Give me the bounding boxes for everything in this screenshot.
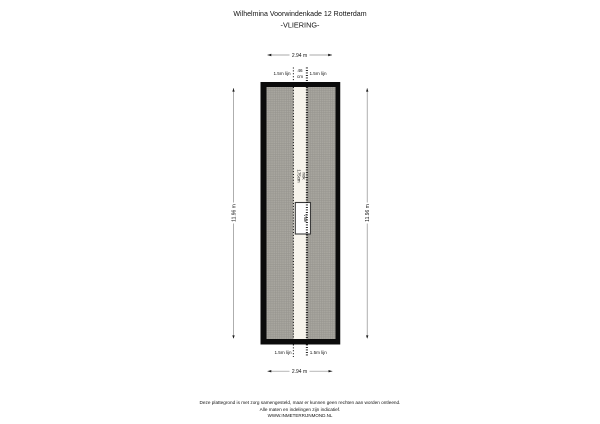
svg-text:1.5m lijn: 1.5m lijn [310, 350, 328, 355]
svg-text:Alle maten en indelingen zijn: Alle maten en indelingen zijn indicatief… [260, 407, 341, 412]
svg-text:11.96 m: 11.96 m [232, 204, 238, 222]
svg-text:1.5m lijn: 1.5m lijn [273, 71, 291, 76]
svg-text:1.5m lijn: 1.5m lijn [274, 350, 292, 355]
svg-text:WWW.INMETERRIJNMOND.NL: WWW.INMETERRIJNMOND.NL [268, 413, 333, 418]
svg-text:2.94 m: 2.94 m [292, 53, 307, 59]
svg-text:Wilhelmina Voorwindenkade 12 R: Wilhelmina Voorwindenkade 12 Rotterdam [233, 11, 366, 18]
svg-text:1.5m lijn: 1.5m lijn [309, 71, 327, 76]
svg-text:Deze plattegrond is met zorg s: Deze plattegrond is met zorg samengestel… [200, 400, 401, 405]
svg-text:11.96 m: 11.96 m [365, 204, 371, 222]
svg-text:46: 46 [297, 68, 303, 73]
svg-text:-VLIERING-: -VLIERING- [281, 21, 320, 30]
svg-text:175cm: 175cm [297, 169, 302, 183]
svg-text:cm: cm [297, 74, 303, 79]
svg-text:2.94 m: 2.94 m [292, 369, 307, 375]
